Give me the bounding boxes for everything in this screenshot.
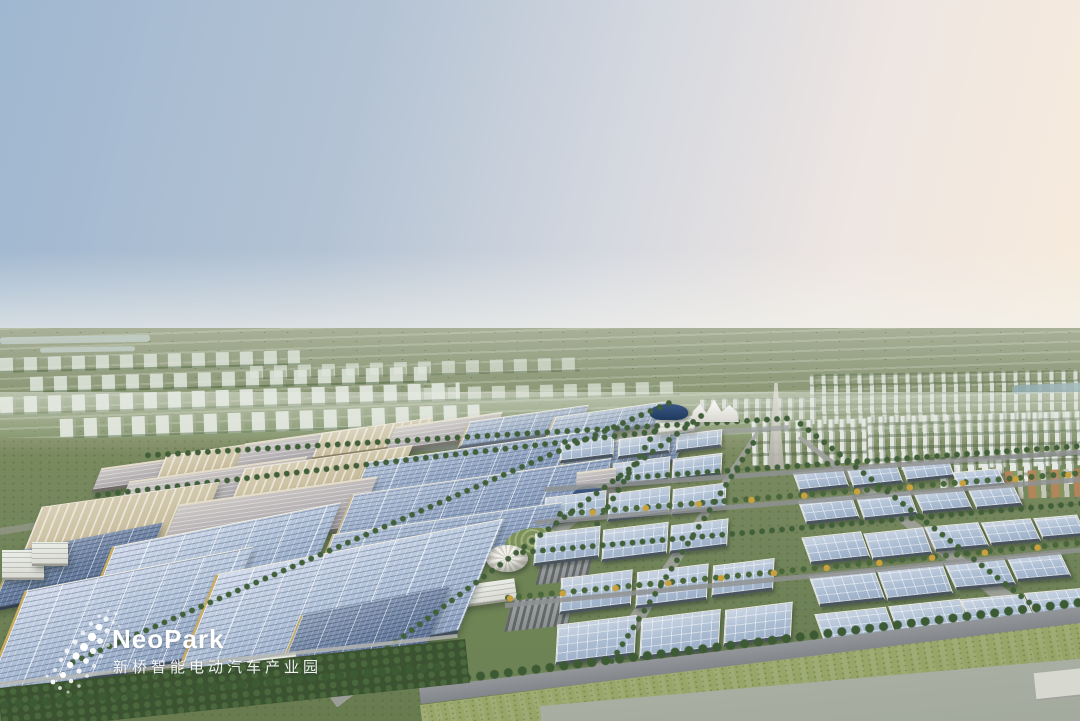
neopark-logo: NeoPark 新桥智能电动汽车产业园 bbox=[30, 600, 370, 710]
aerial-rendering: NeoPark 新桥智能电动汽车产业园 bbox=[0, 0, 1080, 721]
dot-swarm-logo-icon bbox=[33, 604, 123, 699]
brand-name: NeoPark bbox=[112, 624, 225, 655]
office-building bbox=[32, 542, 68, 566]
concrete-pad bbox=[1034, 667, 1080, 701]
brand-subtitle: 新桥智能电动汽车产业园 bbox=[113, 656, 322, 677]
warehouse-building bbox=[981, 518, 1042, 546]
sky bbox=[0, 0, 1080, 348]
